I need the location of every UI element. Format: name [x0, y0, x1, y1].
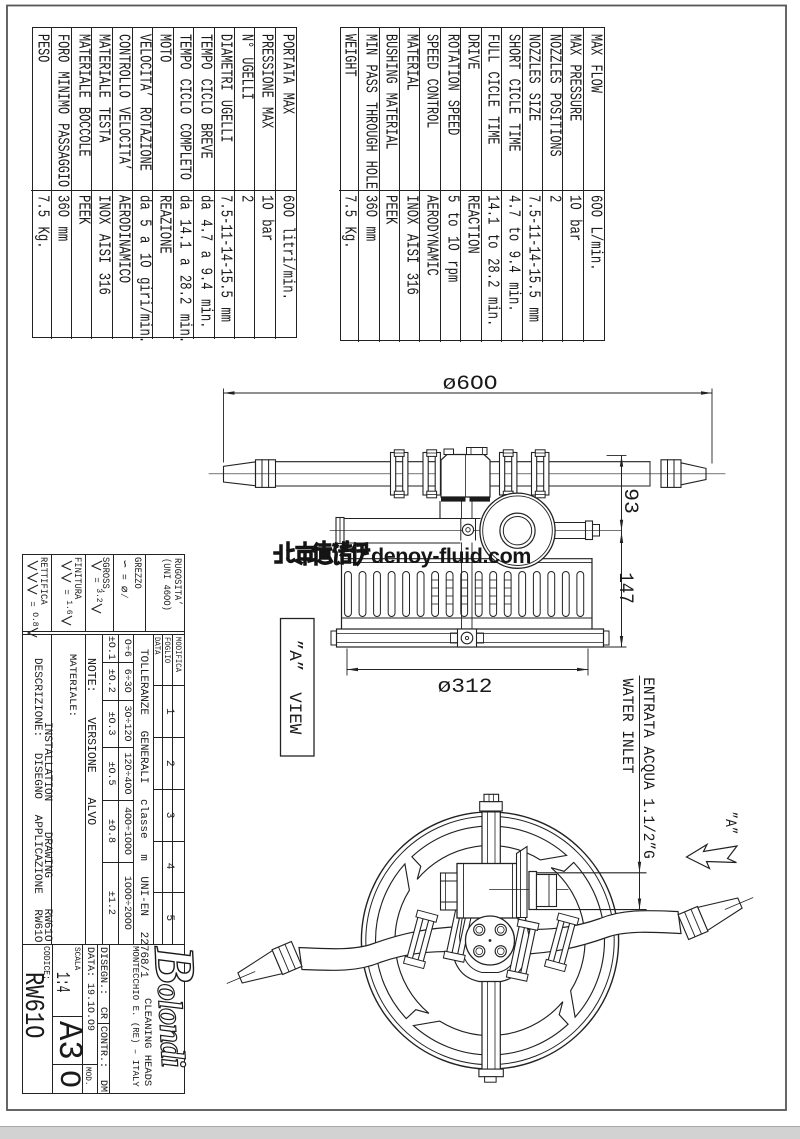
svg-text:denoy-fluid.com: denoy-fluid.com [371, 544, 531, 568]
